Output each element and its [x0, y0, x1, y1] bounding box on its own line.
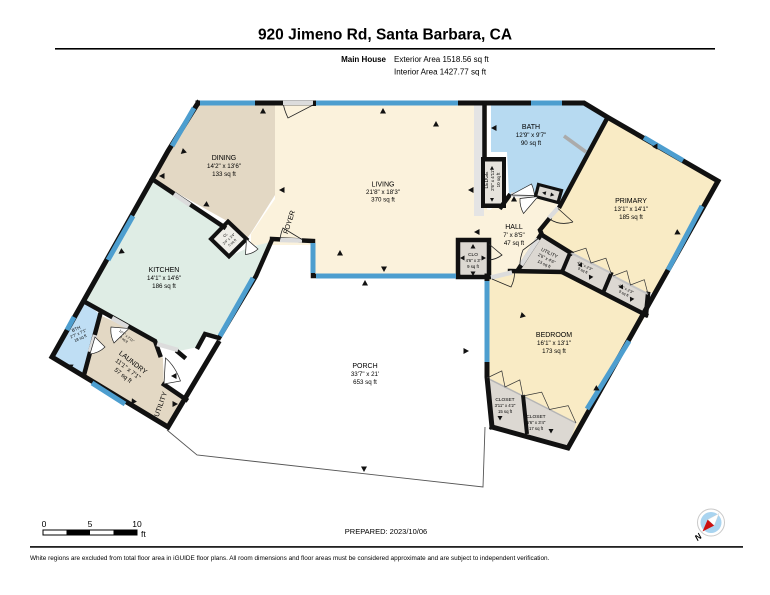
svg-text:4'6" x 3': 4'6" x 3': [466, 258, 481, 263]
svg-text:173 sq ft: 173 sq ft: [542, 348, 566, 355]
svg-text:PRIMARY: PRIMARY: [615, 198, 647, 205]
svg-text:47 sq ft: 47 sq ft: [504, 240, 525, 247]
svg-text:5: 5: [88, 519, 93, 529]
svg-text:16'1" x 13'1": 16'1" x 13'1": [537, 340, 571, 347]
svg-text:ft: ft: [141, 529, 146, 539]
svg-text:370 sq ft: 370 sq ft: [371, 197, 395, 204]
svg-text:13'1" x 14'1": 13'1" x 14'1": [614, 206, 648, 213]
svg-text:10 sq ft: 10 sq ft: [496, 172, 501, 188]
svg-text:14'1" x 14'6": 14'1" x 14'6": [147, 275, 181, 282]
svg-text:14'2" x 13'6": 14'2" x 13'6": [207, 163, 241, 170]
svg-text:133 sq ft: 133 sq ft: [212, 171, 236, 178]
svg-text:Exterior Area 1518.56 sq ft: Exterior Area 1518.56 sq ft: [394, 55, 490, 64]
svg-text:21'8" x 18'3": 21'8" x 18'3": [366, 189, 400, 196]
svg-text:BATH: BATH: [522, 124, 540, 131]
svg-text:Main House: Main House: [341, 55, 386, 64]
svg-text:0: 0: [42, 519, 47, 529]
svg-text:185 sq ft: 185 sq ft: [619, 214, 643, 221]
svg-text:BEDROOM: BEDROOM: [536, 332, 572, 339]
svg-text:90 sq ft: 90 sq ft: [521, 140, 542, 147]
svg-text:PREPARED: 2023/10/06: PREPARED: 2023/10/06: [345, 527, 427, 536]
svg-text:15 sq ft: 15 sq ft: [498, 409, 513, 414]
svg-text:17 sq ft: 17 sq ft: [529, 426, 544, 431]
svg-text:5'6" x 3'4": 5'6" x 3'4": [527, 420, 546, 425]
svg-text:DINING: DINING: [212, 155, 237, 162]
svg-text:920 Jimeno Rd, Santa Barbara,: 920 Jimeno Rd, Santa Barbara, CA: [258, 27, 512, 44]
svg-text:7' x 8'5": 7' x 8'5": [503, 232, 524, 239]
svg-text:KITCHEN: KITCHEN: [149, 267, 180, 274]
svg-text:653 sq ft: 653 sq ft: [353, 379, 377, 386]
svg-text:Interior Area 1427.77 sq ft: Interior Area 1427.77 sq ft: [394, 68, 487, 77]
svg-text:PORCH: PORCH: [352, 363, 377, 370]
svg-text:10: 10: [132, 519, 142, 529]
svg-text:3'11" x 4'2": 3'11" x 4'2": [495, 403, 516, 408]
svg-text:12'9" x 9'7": 12'9" x 9'7": [516, 132, 547, 139]
svg-text:HALL: HALL: [505, 224, 523, 231]
svg-text:White regions are excluded fro: White regions are excluded from total fl…: [30, 555, 550, 562]
svg-text:LIVING: LIVING: [372, 182, 395, 189]
svg-text:2'6" x 4'11": 2'6" x 4'11": [490, 169, 495, 191]
svg-text:9 sq ft: 9 sq ft: [467, 264, 480, 269]
svg-text:186 sq ft: 186 sq ft: [152, 283, 176, 290]
svg-text:33'7" x 21': 33'7" x 21': [351, 371, 379, 378]
